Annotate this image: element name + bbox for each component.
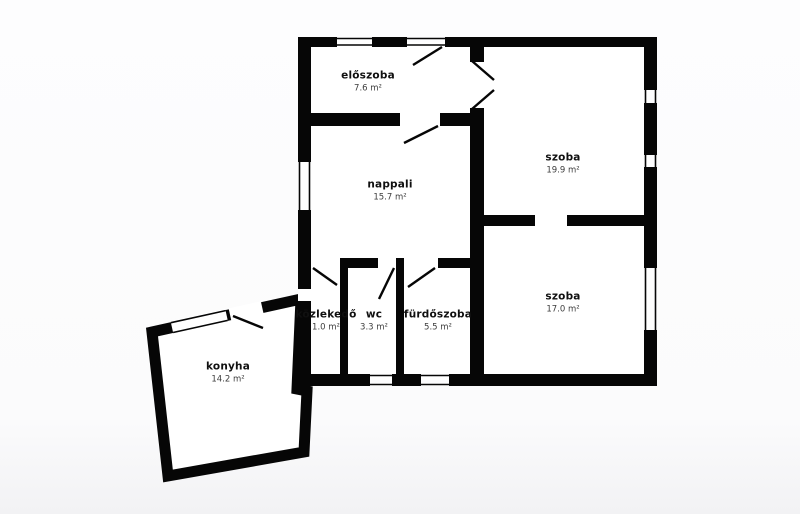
room-konyha-walls xyxy=(152,299,307,476)
floor-plan-drawing xyxy=(0,0,800,514)
floor-plan-canvas: előszoba 7.6 m² nappali 15.7 m² szoba 19… xyxy=(0,0,800,514)
konyha-passage-opening xyxy=(298,289,311,301)
